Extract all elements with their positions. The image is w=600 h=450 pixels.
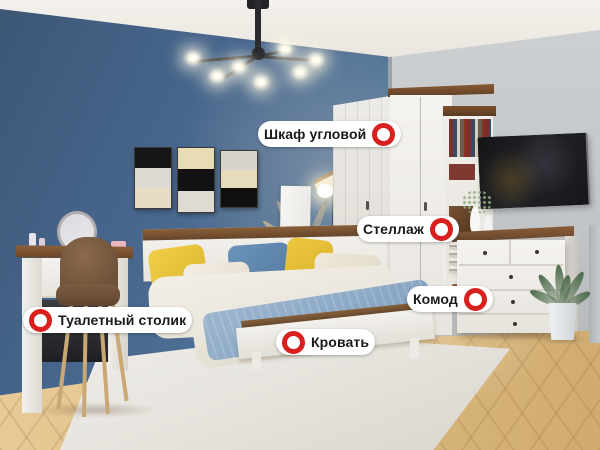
floor-lamp-glow	[317, 184, 333, 198]
bed-leg	[410, 338, 419, 358]
hotspot-bed[interactable]: Кровать	[276, 329, 375, 355]
wardrobe-handle	[424, 202, 427, 211]
plant-pot	[547, 303, 578, 340]
art-panel	[220, 150, 258, 208]
hotspot-shelving[interactable]: Стеллаж	[357, 216, 459, 242]
hotspot-label: Шкаф угловой	[264, 126, 366, 142]
light-bulb	[188, 54, 198, 62]
light-bulb	[256, 78, 266, 86]
hotspot-dresser[interactable]: Комод	[407, 286, 493, 312]
wardrobe-handle	[366, 201, 369, 210]
red-ring-hotspot-icon[interactable]	[282, 331, 305, 354]
light-bulb	[280, 45, 290, 53]
white-vase	[470, 206, 480, 234]
hotspot-dressing-table[interactable]: Туалетный столик	[23, 307, 192, 333]
bed-leg	[252, 352, 261, 370]
drawer-knob	[513, 322, 517, 326]
hotspot-label: Кровать	[311, 334, 369, 350]
drawer-knob	[535, 250, 539, 254]
chandelier-rod	[255, 0, 261, 52]
drawer-knob	[483, 251, 487, 255]
chandelier-hub	[252, 47, 265, 60]
art-panel	[134, 147, 172, 209]
light-bulb	[295, 68, 305, 76]
chair-seat	[56, 284, 120, 306]
drawer-knob	[511, 300, 515, 304]
red-ring-hotspot-icon[interactable]	[372, 123, 395, 146]
red-ring-hotspot-icon[interactable]	[464, 288, 487, 311]
storage-box	[449, 164, 475, 180]
red-ring-hotspot-icon[interactable]	[29, 309, 52, 332]
red-ring-hotspot-icon[interactable]	[430, 218, 453, 241]
light-bulb	[311, 56, 321, 64]
curtain-edge	[589, 225, 600, 343]
shelving-wood-top	[443, 106, 496, 116]
table-shadow	[30, 402, 160, 418]
art-panel	[177, 147, 215, 213]
hotspot-corner-wardrobe[interactable]: Шкаф угловой	[258, 121, 401, 147]
dressing-table-leg-panel	[22, 258, 42, 413]
hotspot-label: Туалетный столик	[58, 312, 186, 328]
light-bulb	[234, 63, 244, 71]
wall-art-triptych	[134, 147, 258, 213]
room-photo: Шкаф угловой Стеллаж Комод Кровать Туале…	[0, 0, 600, 450]
hotspot-label: Комод	[413, 291, 458, 307]
drawer-knob	[509, 275, 513, 279]
wall-mounted-tv	[477, 133, 590, 210]
light-bulb	[212, 72, 222, 80]
hotspot-label: Стеллаж	[363, 221, 424, 237]
